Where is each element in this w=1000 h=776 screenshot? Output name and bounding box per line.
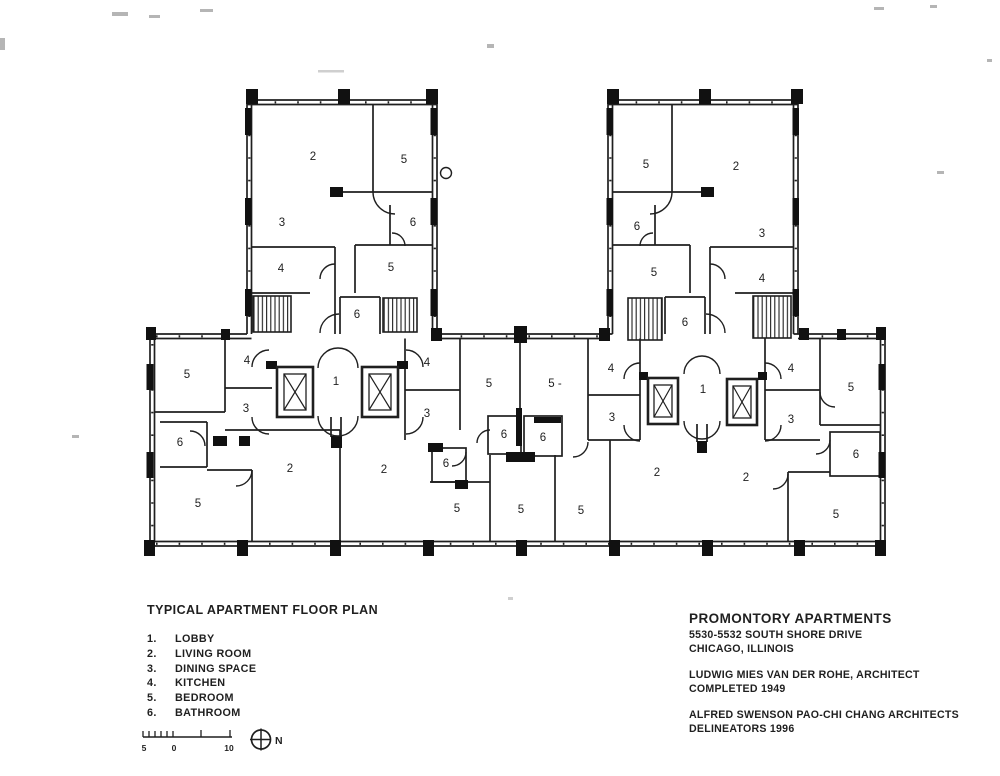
legend-item-number: 4. (147, 676, 175, 691)
scale-bar: 5 0 10 (142, 730, 234, 753)
room-label: 3 (609, 412, 615, 424)
room-label: 5 (578, 505, 584, 517)
room-label: 6 (410, 217, 416, 229)
room-label: 5 (486, 378, 492, 390)
room-label: 1 (333, 376, 339, 388)
scale-zero-label: 0 (172, 743, 177, 753)
stair-hatch (253, 296, 291, 332)
room-label: 3 (279, 217, 285, 229)
legend-item-label: BEDROOM (175, 691, 234, 706)
room-label: 3 (243, 403, 249, 415)
legend-item: 6.BATHROOM (147, 706, 378, 721)
room-label: 5 (643, 159, 649, 171)
room-label: 5 (651, 267, 657, 279)
room-label: 5 (195, 498, 201, 510)
room-label: 4 (278, 263, 285, 275)
plan-circle-detail (441, 168, 452, 179)
room-label: 6 (177, 437, 183, 449)
legend-item-number: 2. (147, 647, 175, 662)
room-label: 6 (501, 429, 507, 441)
legend-block: TYPICAL APARTMENT FLOOR PLAN 1.LOBBY2.LI… (147, 603, 378, 721)
stair-hatch (628, 298, 662, 340)
project-title: PROMONTORY APARTMENTS (689, 611, 959, 626)
delineators-line-2: DELINEATORS 1996 (689, 723, 959, 737)
legend-item-number: 5. (147, 691, 175, 706)
room-label: 3 (759, 228, 765, 240)
room-label: 2 (733, 161, 739, 173)
legend-item-label: LIVING ROOM (175, 647, 251, 662)
room-label: 5 (184, 369, 190, 381)
scale-left-label: 5 (142, 743, 147, 753)
room-label: 5 (848, 382, 854, 394)
legend-item: 5.BEDROOM (147, 691, 378, 706)
stair-hatch (383, 298, 417, 332)
room-label: 5 (833, 509, 839, 521)
room-label: 4 (759, 273, 766, 285)
room-label: 4 (608, 363, 615, 375)
legend-item-label: KITCHEN (175, 676, 225, 691)
title-block: PROMONTORY APARTMENTS 5530-5532 SOUTH SH… (689, 611, 959, 737)
legend-item: 1.LOBBY (147, 632, 378, 647)
legend-title: TYPICAL APARTMENT FLOOR PLAN (147, 603, 378, 617)
room-label: 4 (244, 355, 251, 367)
room-label: 6 (853, 449, 859, 461)
elevator-shaft (277, 367, 313, 417)
legend-item: 3.DINING SPACE (147, 662, 378, 677)
legend-items: 1.LOBBY2.LIVING ROOM3.DINING SPACE4.KITC… (147, 632, 378, 721)
delineators-line-1: ALFRED SWENSON PAO-CHI CHANG ARCHITECTS (689, 709, 959, 723)
door-swings (190, 192, 835, 489)
stair-hatch (753, 296, 791, 338)
room-label: 6 (634, 221, 640, 233)
room-label: 2 (654, 467, 660, 479)
room-label: 6 (540, 432, 546, 444)
room-label: 6 (354, 309, 360, 321)
scan-artifacts (0, 5, 992, 600)
room-label: 3 (788, 414, 794, 426)
room-label: 2 (287, 463, 293, 475)
room-label: 5 (518, 504, 524, 516)
legend-item: 4.KITCHEN (147, 676, 378, 691)
room-label: 5 (454, 503, 460, 515)
elevator-shaft (648, 378, 678, 424)
scanned-floor-plan-page: 25364565263546543652124355 -436665552145… (0, 0, 1000, 776)
legend-item-number: 6. (147, 706, 175, 721)
room-label: 6 (682, 317, 688, 329)
legend-item-number: 1. (147, 632, 175, 647)
scale-right-label: 10 (224, 743, 234, 753)
address-line-2: CHICAGO, ILLINOIS (689, 643, 959, 657)
room-label: 5 - (548, 378, 562, 390)
address-line-1: 5530-5532 SOUTH SHORE DRIVE (689, 629, 959, 643)
elevator-shaft (362, 367, 398, 417)
room-label: 3 (424, 408, 430, 420)
room-label: 2 (743, 472, 749, 484)
room-label: 5 (401, 154, 407, 166)
room-label: 1 (700, 384, 706, 396)
architect-line: LUDWIG MIES VAN DER ROHE, ARCHITECT (689, 669, 959, 683)
completed-line: COMPLETED 1949 (689, 683, 959, 697)
legend-item: 2.LIVING ROOM (147, 647, 378, 662)
elevator-shaft (727, 379, 757, 425)
legend-item-label: BATHROOM (175, 706, 241, 721)
room-label: 4 (424, 357, 431, 369)
legend-item-label: LOBBY (175, 632, 215, 647)
room-label: 2 (310, 151, 316, 163)
room-label: 4 (788, 363, 795, 375)
room-label: 2 (381, 464, 387, 476)
legend-item-label: DINING SPACE (175, 662, 256, 677)
north-arrow-icon: N (250, 729, 283, 751)
legend-item-number: 3. (147, 662, 175, 677)
room-label: 6 (443, 458, 449, 470)
room-label: 5 (388, 262, 394, 274)
north-label: N (275, 735, 283, 747)
